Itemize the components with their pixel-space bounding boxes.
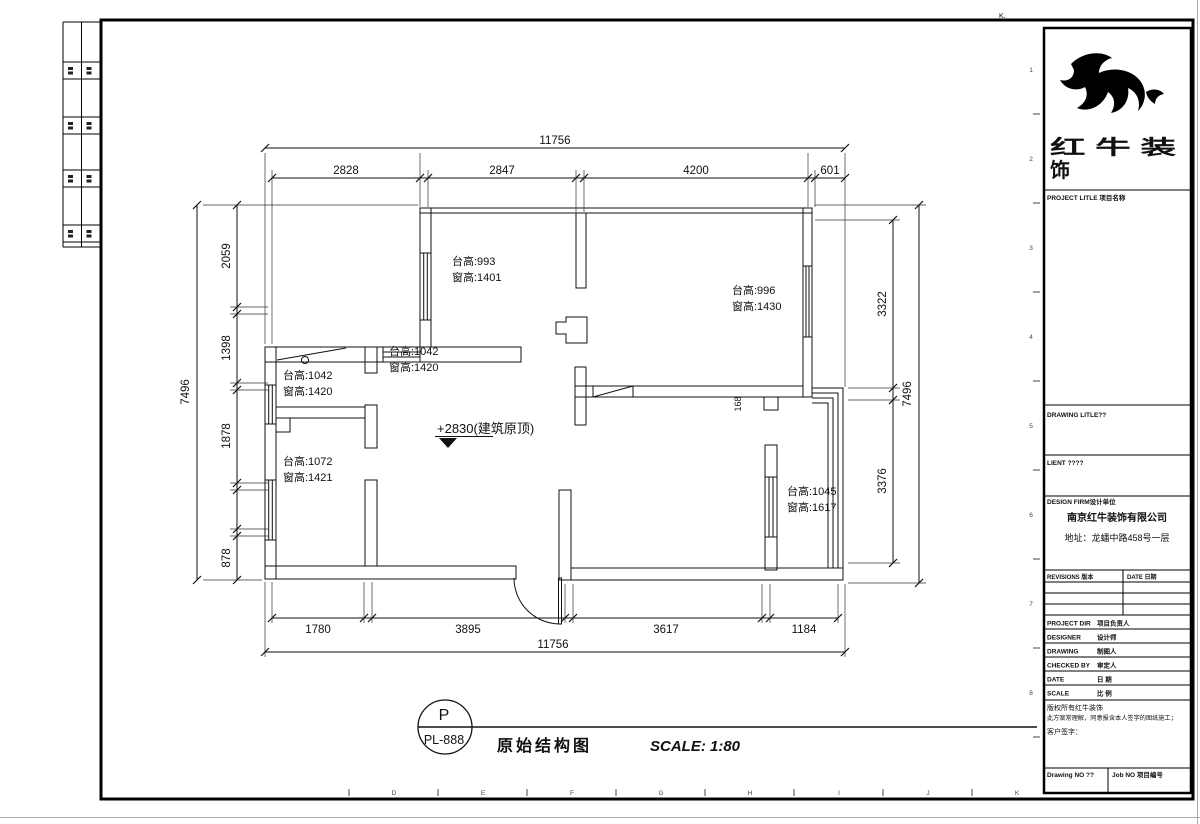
row-scale-en: SCALE bbox=[1047, 691, 1070, 698]
dimension-lines bbox=[197, 148, 919, 652]
grid-number-5: 5 bbox=[1029, 423, 1033, 430]
grid-letters-bottom: DEFGHIJK bbox=[349, 789, 1020, 797]
closet-diagonal bbox=[277, 348, 346, 360]
dim-right-1: 3322 bbox=[877, 291, 889, 317]
stamp-letter: P bbox=[439, 707, 450, 724]
grid-number-2: 2 bbox=[1029, 156, 1033, 163]
stamp-code: PL-888 bbox=[424, 733, 464, 747]
copyright-note: 版权所有红牛装饰 bbox=[1047, 703, 1103, 712]
annotation-3b: 窗高:1420 bbox=[389, 360, 439, 374]
agreement-note: 此方案常理解，同意报含本人签字的图纸施工； bbox=[1047, 714, 1177, 722]
bay-line-3 bbox=[812, 393, 838, 568]
wall-top bbox=[420, 208, 812, 213]
drawing-title-label: DRAWING LITLE?? bbox=[1047, 412, 1106, 419]
annotation-2a: 台高:996 bbox=[732, 283, 775, 297]
grid-number-3: 3 bbox=[1029, 245, 1033, 252]
annotation-6a: 台高:1045 bbox=[787, 484, 837, 498]
page-edges bbox=[0, 0, 1200, 824]
door-swing-arc bbox=[514, 578, 560, 624]
dim-top-1: 2828 bbox=[333, 165, 359, 177]
dim-left-4: 878 bbox=[221, 548, 233, 567]
scale-note: SCALE: 1:80 bbox=[650, 738, 741, 755]
grid-letter-F: F bbox=[570, 790, 574, 797]
grid-letter-E: E bbox=[481, 790, 486, 797]
window-left-mid bbox=[265, 385, 277, 424]
client-sign-label: 客户签字： bbox=[1047, 727, 1082, 736]
row-checked-cn: 审定人 bbox=[1097, 661, 1117, 670]
row-designer-en: DESIGNER bbox=[1047, 635, 1081, 642]
wall-stub bbox=[575, 367, 586, 425]
dim-right-2: 3376 bbox=[877, 468, 889, 494]
grid-number-6: 6 bbox=[1029, 512, 1033, 519]
dim-top-total: 11756 bbox=[539, 135, 570, 147]
level-marker: +2830(建筑原顶) bbox=[435, 421, 534, 448]
dim-top-3: 4200 bbox=[683, 165, 709, 177]
annotation-1b: 窗高:1401 bbox=[452, 270, 502, 284]
dim-left-1: 2059 bbox=[221, 243, 233, 269]
grid-number-7: 7 bbox=[1029, 601, 1033, 608]
wall-left-outer bbox=[265, 347, 276, 579]
grid-letter-J: J bbox=[926, 790, 929, 797]
drawing-sheet: DEFGHIJK 12345678 K. bbox=[0, 0, 1200, 824]
dim-top-4: 601 bbox=[820, 165, 839, 177]
bay-line-2 bbox=[812, 398, 833, 568]
grid-numbers-right: 12345678 bbox=[1029, 67, 1040, 737]
dim-bottom-total: 11756 bbox=[537, 639, 568, 651]
job-no-label: Job NO 项目编号 bbox=[1112, 770, 1163, 779]
drawing-no-label: Drawing NO ?? bbox=[1047, 772, 1094, 779]
design-firm-label: DESIGN FIRM设计单位 bbox=[1047, 497, 1116, 506]
wall-mid-vertical-2 bbox=[365, 405, 377, 448]
door-leaf bbox=[559, 578, 562, 624]
wall-upperright-bottom bbox=[575, 386, 803, 397]
drawing-title: 原始结构图 bbox=[497, 736, 592, 755]
row-projectdir-en: PROJECT DIR bbox=[1047, 621, 1091, 628]
floor-plan-walls bbox=[265, 208, 843, 580]
wall-mid-vertical-1 bbox=[365, 347, 377, 373]
dim-bottom-4: 1184 bbox=[792, 624, 817, 636]
grid-letter-I: I bbox=[838, 790, 840, 797]
signature-strip-marks bbox=[68, 67, 92, 238]
grid-number-1: 1 bbox=[1029, 67, 1033, 74]
grid-number-4: 4 bbox=[1029, 334, 1033, 341]
row-drawing-cn: 制图人 bbox=[1097, 647, 1117, 656]
column bbox=[556, 317, 587, 343]
row-scale-cn: 比 例 bbox=[1097, 689, 1112, 698]
firm-address: 地址：龙蟠中路458号一层 bbox=[1064, 532, 1169, 543]
annotation-3a: 台高:1042 bbox=[389, 344, 439, 358]
row-drawing-en: DRAWING bbox=[1047, 649, 1078, 656]
row-projectdir-cn: 项目负责人 bbox=[1097, 619, 1130, 628]
dim-bottom-3: 3617 bbox=[653, 624, 679, 636]
dim-168: 168 bbox=[733, 396, 743, 411]
wall-bottom-right bbox=[571, 568, 843, 580]
annotation-4a: 台高:1042 bbox=[283, 368, 333, 382]
window-lowerright bbox=[765, 477, 778, 537]
brand-name-line2: 饰 bbox=[1050, 158, 1070, 182]
level-triangle-icon bbox=[439, 438, 457, 448]
row-designer-cn: 设计师 bbox=[1097, 633, 1117, 642]
wall-partition-a bbox=[576, 213, 586, 288]
window-left-lower bbox=[265, 480, 277, 540]
annotation-1a: 台高:993 bbox=[452, 254, 495, 268]
wall-mid-horizontal bbox=[276, 407, 365, 418]
window-upperleft bbox=[420, 253, 432, 320]
dim-top-2: 2847 bbox=[489, 165, 515, 177]
level-label: +2830(建筑原顶) bbox=[437, 421, 534, 436]
dim-bottom-2: 3895 bbox=[455, 624, 481, 636]
grid-letter-G: G bbox=[658, 790, 663, 797]
vent-diagonal bbox=[593, 386, 633, 397]
dim-left-3: 1878 bbox=[221, 423, 233, 449]
brand-name-line1: 红 牛 装 bbox=[1050, 135, 1176, 159]
wall-pier bbox=[276, 418, 290, 432]
entry-door bbox=[514, 578, 562, 624]
window-right bbox=[803, 266, 813, 337]
annotation-5a: 台高:1072 bbox=[283, 454, 333, 468]
wall-entry-partition bbox=[559, 490, 571, 580]
signature-strip bbox=[63, 22, 100, 247]
row-checked-en: CHECKED BY bbox=[1047, 663, 1091, 670]
grid-letter-K: K bbox=[1015, 790, 1020, 797]
row-date-cn: 日 期 bbox=[1097, 675, 1112, 684]
grid-letter-H: H bbox=[748, 790, 753, 797]
dim-left-2: 1398 bbox=[221, 335, 233, 361]
grid-corner-letter: K. bbox=[999, 13, 1006, 20]
wall-lower-right-notch bbox=[764, 397, 778, 410]
revisions-label: REVISIONS 版本 bbox=[1047, 573, 1094, 581]
annotation-5b: 窗高:1421 bbox=[283, 470, 333, 484]
dim-bottom-1: 1780 bbox=[305, 624, 331, 636]
annotation-2b: 窗高:1430 bbox=[732, 299, 782, 313]
dim-left-total: 7496 bbox=[180, 379, 192, 405]
project-title-label: PROJECT LITLE 项目名称 bbox=[1047, 193, 1126, 202]
annotation-4b: 窗高:1420 bbox=[283, 384, 333, 398]
grid-number-8: 8 bbox=[1029, 690, 1033, 697]
wall-mid-vertical-3 bbox=[365, 480, 377, 566]
date-header-label: DATE 日期 bbox=[1127, 573, 1157, 581]
annotation-6b: 窗高:1617 bbox=[787, 500, 837, 514]
extension-lines bbox=[203, 153, 926, 657]
wall-bottom-left bbox=[265, 566, 516, 579]
firm-name: 南京红牛装饰有限公司 bbox=[1067, 511, 1167, 524]
title-block: 红 牛 装 饰 PROJECT LITLE 项目名称 DRAWING LITLE… bbox=[1044, 28, 1191, 793]
client-label: LIENT ???? bbox=[1047, 460, 1083, 467]
row-date-en: DATE bbox=[1047, 677, 1065, 684]
room-annotations: 台高:993 窗高:1401 台高:996 窗高:1430 台高:1042 窗高… bbox=[283, 254, 837, 514]
dim-right-total: 7496 bbox=[902, 381, 914, 407]
grid-letter-D: D bbox=[392, 790, 397, 797]
